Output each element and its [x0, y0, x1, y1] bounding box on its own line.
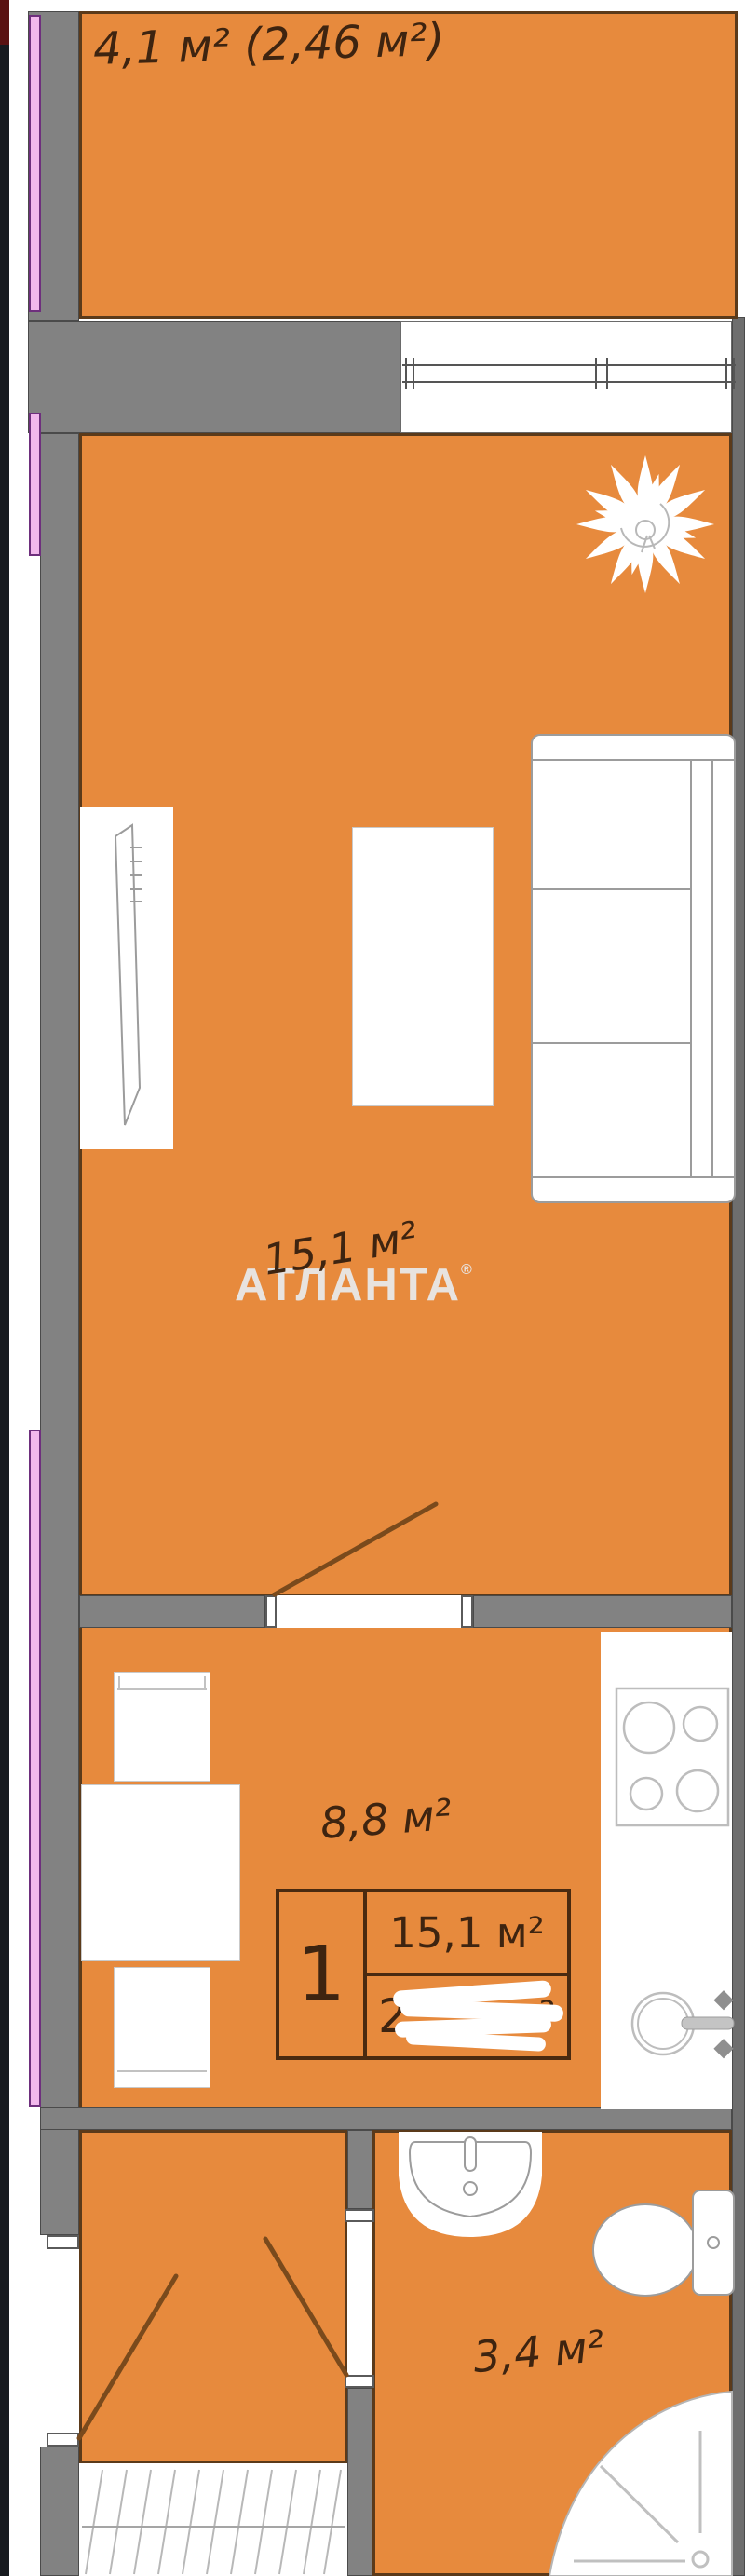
- bathroom-area-label: 3,4 м²: [471, 2325, 605, 2379]
- wall-hall-bath-upper: [347, 2130, 372, 2209]
- entry-hatch-area: [79, 2463, 347, 2576]
- wall-left-main: [40, 433, 79, 2235]
- registered-mark: ®: [461, 1262, 474, 1278]
- balcony-window-band: [400, 321, 732, 433]
- floor-plan: АТЛАНТА® 4,1 м² (2,46 м²) 15,1 м² 8,8 м²…: [0, 0, 745, 2576]
- door-jamb: [345, 2209, 374, 2222]
- sofa: [531, 734, 736, 1203]
- window-marker-kitchen: [29, 1430, 41, 2107]
- wall-band-balcony: [28, 321, 400, 433]
- kitchen-area-label: 8,8 м²: [319, 1793, 454, 1845]
- door-opening-left: [40, 2249, 79, 2433]
- coffee-table: [352, 827, 494, 1106]
- door-jamb: [461, 1595, 473, 1628]
- info-living-area: 15,1 м²: [367, 1892, 567, 1976]
- hallway-room: [79, 2130, 347, 2463]
- door-threshold-living-kitchen: [277, 1595, 461, 1628]
- door-jamb: [265, 1595, 277, 1628]
- window-marker-balcony: [29, 15, 41, 312]
- wall-living-kitchen-right: [473, 1595, 732, 1628]
- dining-chair: [114, 1672, 210, 1782]
- wall-right-exterior: [732, 317, 745, 2576]
- info-total-area: 2 м²: [367, 1976, 567, 2056]
- window-marker-living: [29, 413, 41, 556]
- info-table: 1 15,1 м² 2 м²: [276, 1889, 571, 2060]
- wall-living-kitchen-left: [79, 1595, 265, 1628]
- dining-chair: [114, 1967, 210, 2088]
- info-rooms-count: 1: [279, 1892, 367, 2056]
- door-opening-bath: [347, 2222, 372, 2375]
- scribble-redaction: [393, 1980, 565, 2053]
- balcony-area-label: 4,1 м² (2,46 м²): [92, 18, 444, 72]
- door-jamb: [47, 2235, 79, 2249]
- door-jamb: [345, 2375, 374, 2388]
- wall-left-lower: [40, 2447, 79, 2576]
- door-jamb: [47, 2433, 79, 2447]
- photo-edge-red: [0, 0, 9, 45]
- wall-hall-bath-lower: [347, 2388, 372, 2576]
- wall-kitchen-bottom: [40, 2107, 732, 2130]
- kitchen-counter: [601, 1632, 732, 2109]
- tv-panel: [80, 807, 173, 1149]
- photo-edge-strip: [0, 0, 9, 2576]
- dining-table: [81, 1784, 240, 1961]
